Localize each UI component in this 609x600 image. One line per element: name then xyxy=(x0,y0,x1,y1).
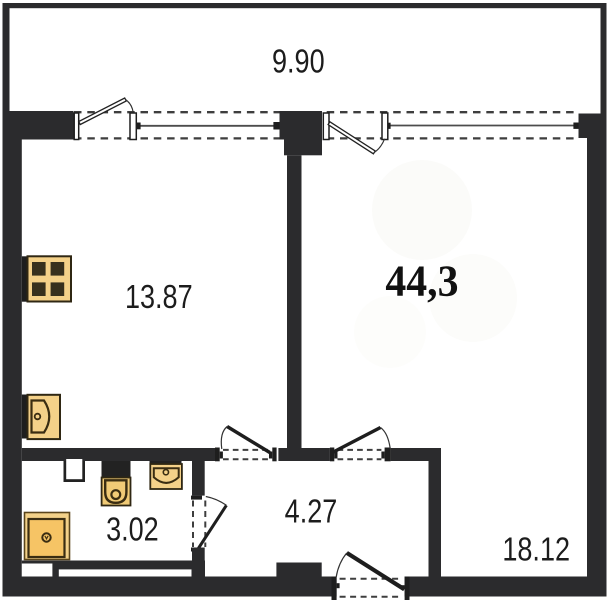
svg-text:44,3: 44,3 xyxy=(385,257,458,305)
svg-text:13.87: 13.87 xyxy=(125,279,193,315)
svg-text:3.02: 3.02 xyxy=(106,512,159,548)
svg-text:4.27: 4.27 xyxy=(285,494,338,530)
svg-text:18.12: 18.12 xyxy=(502,532,570,568)
svg-text:9.90: 9.90 xyxy=(272,44,325,80)
